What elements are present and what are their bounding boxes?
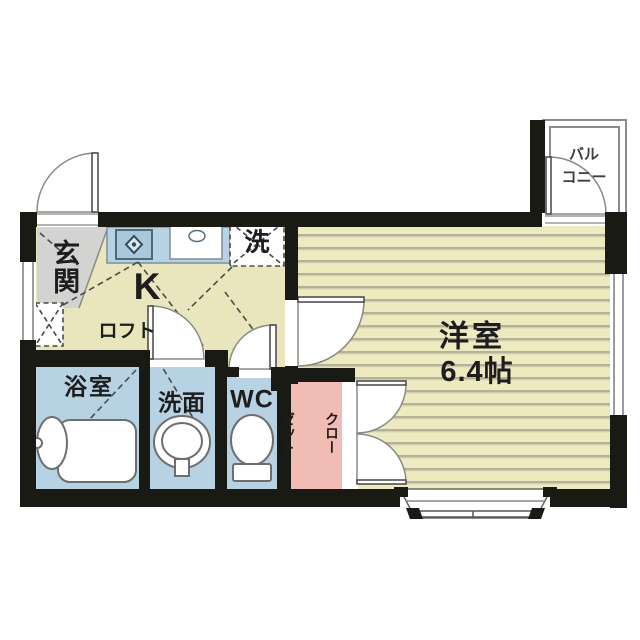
right-window <box>610 274 627 415</box>
room-label-balcony: バル コニー <box>561 143 606 190</box>
closet-label-line2: ゼット <box>280 412 295 454</box>
room-label-bathroom: 浴室 <box>64 373 114 400</box>
room-label-kitchen: K <box>134 265 161 309</box>
entrance-door <box>37 153 98 225</box>
bathtub <box>58 420 136 482</box>
balcony-label-line1: バル <box>561 143 606 166</box>
floorplan-drawing <box>0 0 640 640</box>
faucet-icon <box>189 231 205 242</box>
floorplan-canvas: 玄関 K ロフト 洗 浴室 洗面 WC クロー ゼット 洋室 6.4帖 バル コ… <box>0 0 640 640</box>
room-label-closet: クロー ゼット <box>266 412 369 454</box>
room-label-loft: ロフト <box>98 321 155 343</box>
closet-label-line1: クロー <box>324 412 339 454</box>
room-label-western-room: 洋室 <box>439 319 505 354</box>
room-label-genkan: 玄関 <box>50 239 78 295</box>
left-window <box>20 262 36 340</box>
kitchen-counter <box>107 226 230 263</box>
room-label-laundry: 洗 <box>244 228 269 258</box>
room-label-toilet: WC <box>230 385 274 415</box>
bay-window <box>394 487 557 519</box>
room-label-washroom: 洗面 <box>158 389 206 416</box>
balcony-label-line2: コニー <box>561 166 606 189</box>
storage-box <box>35 303 63 346</box>
room-size-western-room: 6.4帖 <box>440 355 513 389</box>
